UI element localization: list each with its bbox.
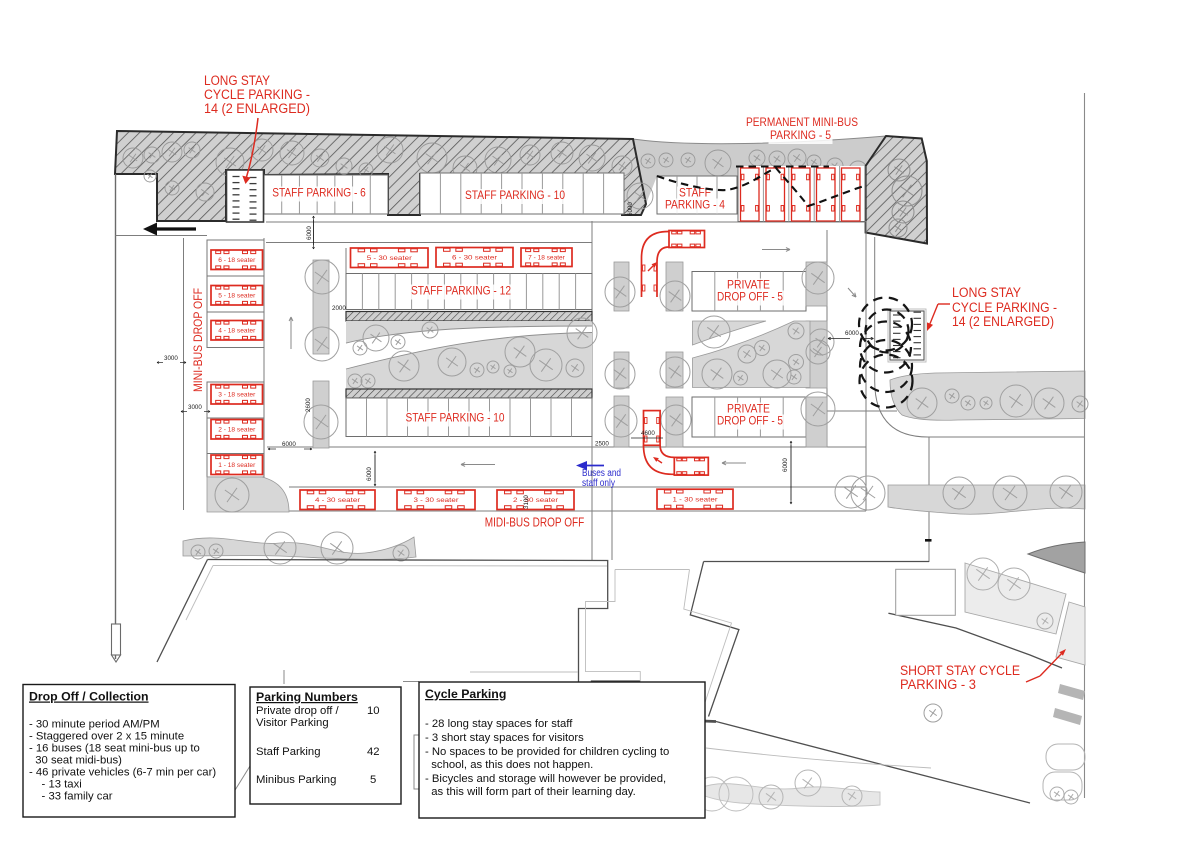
svg-text:1 - 18 seater: 1 - 18 seater: [218, 463, 255, 469]
svg-text:DROP OFF - 5: DROP OFF - 5: [717, 414, 783, 428]
svg-text:SHORT STAY CYCLE: SHORT STAY CYCLE: [900, 663, 1020, 678]
svg-text:LONG STAY: LONG STAY: [204, 73, 270, 88]
svg-text:STAFF PARKING - 12: STAFF PARKING - 12: [411, 284, 511, 298]
svg-text:CYCLE PARKING -: CYCLE PARKING -: [204, 87, 310, 102]
svg-text:Staff Parking: Staff Parking: [256, 746, 320, 758]
svg-text:2000: 2000: [332, 305, 346, 312]
svg-text:- Staggered over 2 x 15 minute: - Staggered over 2 x 15 minute: [29, 731, 184, 743]
svg-text:6 - 30 seater: 6 - 30 seater: [452, 256, 497, 262]
svg-text:MIDI-BUS DROP OFF: MIDI-BUS DROP OFF: [485, 515, 585, 530]
svg-text:14 (2 ENLARGED): 14 (2 ENLARGED): [952, 314, 1054, 329]
svg-text:Parking Numbers: Parking Numbers: [256, 690, 358, 704]
svg-text:5: 5: [370, 774, 376, 786]
svg-text:Private drop off /: Private drop off /: [256, 705, 340, 717]
svg-text:6000: 6000: [782, 458, 789, 472]
svg-text:30 seat midi-bus): 30 seat midi-bus): [29, 755, 122, 767]
svg-text:- Bicycles and storage will ho: - Bicycles and storage will however be p…: [425, 773, 666, 785]
svg-text:- 3 short stay spaces for visi: - 3 short stay spaces for visitors: [425, 732, 584, 744]
svg-text:10: 10: [367, 705, 380, 717]
svg-text:5 - 18 seater: 5 - 18 seater: [218, 294, 255, 300]
svg-text:- No spaces to be provided for: - No spaces to be provided for children …: [425, 746, 669, 758]
svg-text:14 (2 ENLARGED): 14 (2 ENLARGED): [204, 101, 310, 116]
svg-text:STAFF PARKING - 6: STAFF PARKING - 6: [272, 186, 366, 200]
svg-text:6 - 18 seater: 6 - 18 seater: [218, 258, 255, 264]
svg-text:PARKING - 5: PARKING - 5: [770, 128, 831, 142]
svg-text:Visitor Parking: Visitor Parking: [256, 717, 329, 729]
svg-text:MINI-BUS DROP OFF: MINI-BUS DROP OFF: [191, 288, 205, 392]
svg-text:PARKING - 4: PARKING - 4: [665, 198, 725, 212]
svg-text:2 - 30 seater: 2 - 30 seater: [513, 498, 558, 504]
svg-text:2500: 2500: [595, 441, 609, 448]
svg-text:3000: 3000: [164, 355, 178, 362]
svg-text:5 - 30 seater: 5 - 30 seater: [367, 256, 412, 262]
svg-text:3 - 18 seater: 3 - 18 seater: [218, 393, 255, 399]
svg-text:Minibus Parking: Minibus Parking: [256, 774, 336, 786]
svg-text:- 30 minute period AM/PM: - 30 minute period AM/PM: [29, 719, 160, 731]
svg-text:- 46 private vehicles (6-7 min: - 46 private vehicles (6-7 min per car): [29, 767, 216, 779]
svg-text:42: 42: [367, 746, 380, 758]
svg-text:Drop Off / Collection: Drop Off / Collection: [29, 690, 149, 704]
svg-text:4 - 18 seater: 4 - 18 seater: [218, 329, 255, 335]
svg-text:DROP OFF - 5: DROP OFF - 5: [717, 290, 783, 304]
svg-text:PARKING - 3: PARKING - 3: [900, 677, 976, 692]
svg-text:STAFF PARKING - 10: STAFF PARKING - 10: [406, 411, 505, 425]
svg-text:4 - 30 seater: 4 - 30 seater: [315, 498, 360, 504]
svg-text:3100: 3100: [523, 495, 530, 509]
svg-text:CYCLE PARKING -: CYCLE PARKING -: [952, 300, 1057, 315]
svg-text:6000: 6000: [627, 202, 634, 216]
svg-text:STAFF PARKING - 10: STAFF PARKING - 10: [465, 188, 565, 202]
svg-text:as this will form part of thei: as this will form part of their learning…: [425, 786, 636, 798]
svg-text:staff only: staff only: [582, 478, 615, 489]
svg-text:3000: 3000: [188, 404, 202, 411]
svg-text:- 33 family car: - 33 family car: [29, 791, 113, 803]
svg-text:LONG STAY: LONG STAY: [952, 285, 1021, 300]
svg-text:6000: 6000: [282, 441, 296, 448]
svg-text:7 - 18 seater: 7 - 18 seater: [528, 256, 565, 262]
svg-text:PERMANENT MINI-BUS: PERMANENT MINI-BUS: [746, 115, 858, 129]
svg-text:school, as this does not happe: school, as this does not happen.: [425, 759, 593, 771]
svg-text:3 - 30 seater: 3 - 30 seater: [414, 498, 459, 504]
svg-text:Cycle Parking: Cycle Parking: [425, 687, 506, 701]
svg-text:2 - 18 seater: 2 - 18 seater: [218, 428, 255, 434]
svg-text:4600: 4600: [641, 430, 655, 437]
svg-text:1 - 30 seater: 1 - 30 seater: [673, 497, 718, 503]
svg-text:- 28 long stay spaces for staf: - 28 long stay spaces for staff: [425, 718, 573, 730]
svg-text:6000: 6000: [366, 467, 373, 481]
svg-text:6000: 6000: [845, 330, 859, 337]
svg-text:2600: 2600: [305, 398, 312, 412]
svg-text:- 16 buses (18 seat mini-bus u: - 16 buses (18 seat mini-bus up to: [29, 743, 200, 755]
svg-text:- 13 taxi: - 13 taxi: [29, 779, 82, 791]
svg-text:6000: 6000: [306, 226, 313, 240]
